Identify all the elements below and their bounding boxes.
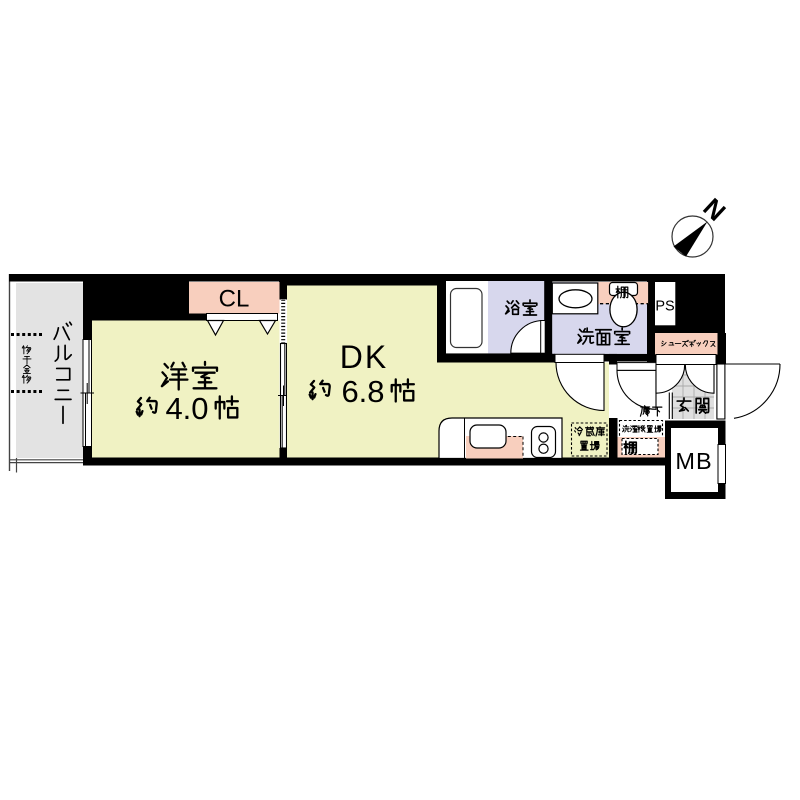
svg-text:PS: PS [655, 299, 674, 315]
svg-text:CL: CL [219, 286, 250, 313]
svg-text:6.8: 6.8 [341, 374, 384, 409]
svg-text:MB: MB [675, 448, 712, 474]
svg-text:4.0: 4.0 [165, 391, 208, 426]
svg-text:DK: DK [340, 339, 388, 375]
